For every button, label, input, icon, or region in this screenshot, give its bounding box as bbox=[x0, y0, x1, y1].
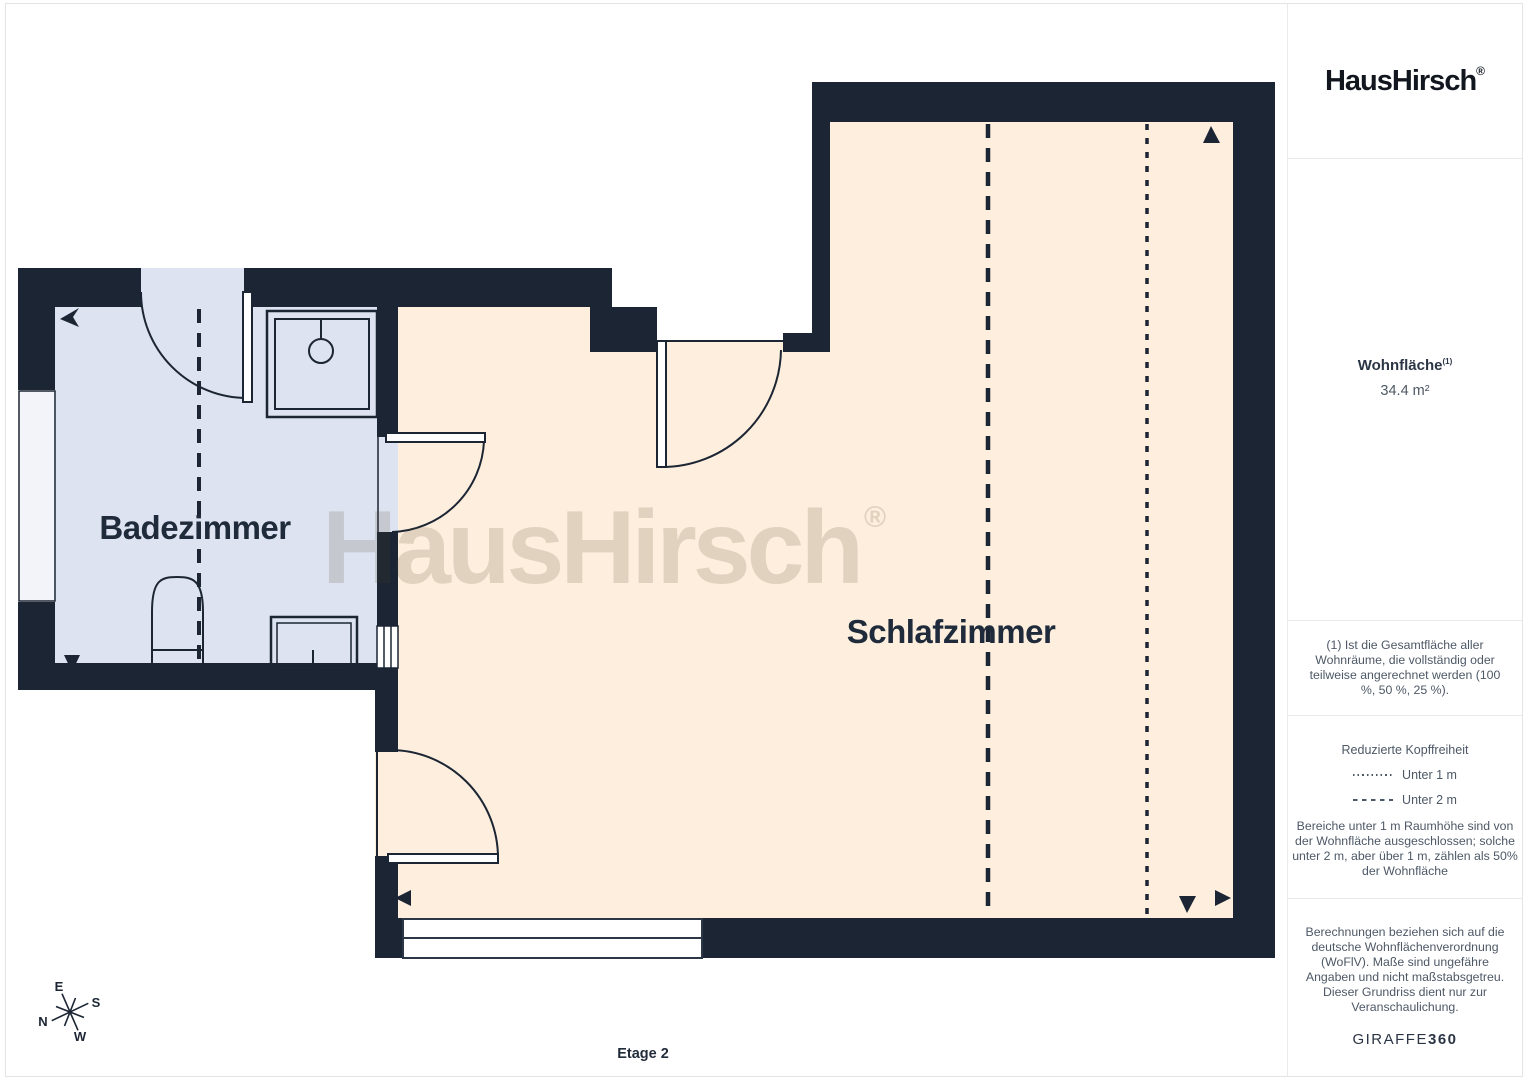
registered-icon: ® bbox=[864, 501, 886, 534]
stairs bbox=[403, 919, 702, 958]
brand-logo: HausHirsch® bbox=[1325, 64, 1485, 98]
footnote-text: (1) Ist die Gesamtfläche aller Wohnräume… bbox=[1301, 638, 1509, 698]
sidebar: HausHirsch® Wohnfläche(1) 34.4 m² (1) Is… bbox=[1287, 4, 1522, 1076]
disclaimer-text: Berechnungen beziehen sich auf die deuts… bbox=[1296, 925, 1514, 1015]
floor-level-label: Etage 2 bbox=[0, 1046, 1286, 1062]
legend-section: Reduzierte Kopffreiheit Unter 1 m Unter … bbox=[1288, 716, 1522, 899]
dashed-line-icon bbox=[1353, 799, 1393, 801]
room-label-badezimmer: Badezimmer bbox=[99, 509, 290, 547]
compass-e: E bbox=[55, 979, 64, 994]
registered-icon: ® bbox=[1476, 64, 1485, 78]
logo-section: HausHirsch® bbox=[1288, 4, 1522, 159]
compass-w: W bbox=[74, 1029, 87, 1044]
compass-icon bbox=[52, 994, 89, 1031]
compass-n: N bbox=[38, 1014, 47, 1029]
floor-plan-page: E S N W HausHirsch® Badezimmer Schlafzim… bbox=[0, 0, 1527, 1080]
bedroom-left-opening bbox=[375, 752, 398, 856]
radiator bbox=[377, 626, 398, 668]
plan-area: E S N W HausHirsch® Badezimmer Schlafzim… bbox=[0, 0, 1286, 1080]
footnote-section: (1) Ist die Gesamtfläche aller Wohnräume… bbox=[1288, 621, 1522, 716]
dotted-line-icon bbox=[1353, 774, 1393, 776]
room-label-schlafzimmer: Schlafzimmer bbox=[847, 613, 1056, 651]
legend-title: Reduzierte Kopffreiheit bbox=[1288, 743, 1522, 757]
legend-item-under-1m: Unter 1 m bbox=[1288, 768, 1522, 782]
disclaimer-section: Berechnungen beziehen sich auf die deuts… bbox=[1288, 899, 1522, 1076]
bath-entry-opening bbox=[141, 268, 244, 307]
bathroom-window bbox=[19, 391, 55, 601]
legend-item-under-2m: Unter 2 m bbox=[1288, 793, 1522, 807]
living-area-title: Wohnfläche(1) bbox=[1288, 357, 1522, 374]
watermark: HausHirsch® bbox=[322, 496, 886, 600]
footnote-ref: (1) bbox=[1442, 357, 1452, 366]
compass-s: S bbox=[92, 995, 101, 1010]
legend-note: Bereiche unter 1 m Raumhöhe sind von der… bbox=[1292, 819, 1518, 879]
living-area-section: Wohnfläche(1) 34.4 m² bbox=[1288, 159, 1522, 621]
living-area-value: 34.4 m² bbox=[1288, 383, 1522, 399]
giraffe360-logo: GIRAFFE360 bbox=[1288, 1031, 1522, 1048]
